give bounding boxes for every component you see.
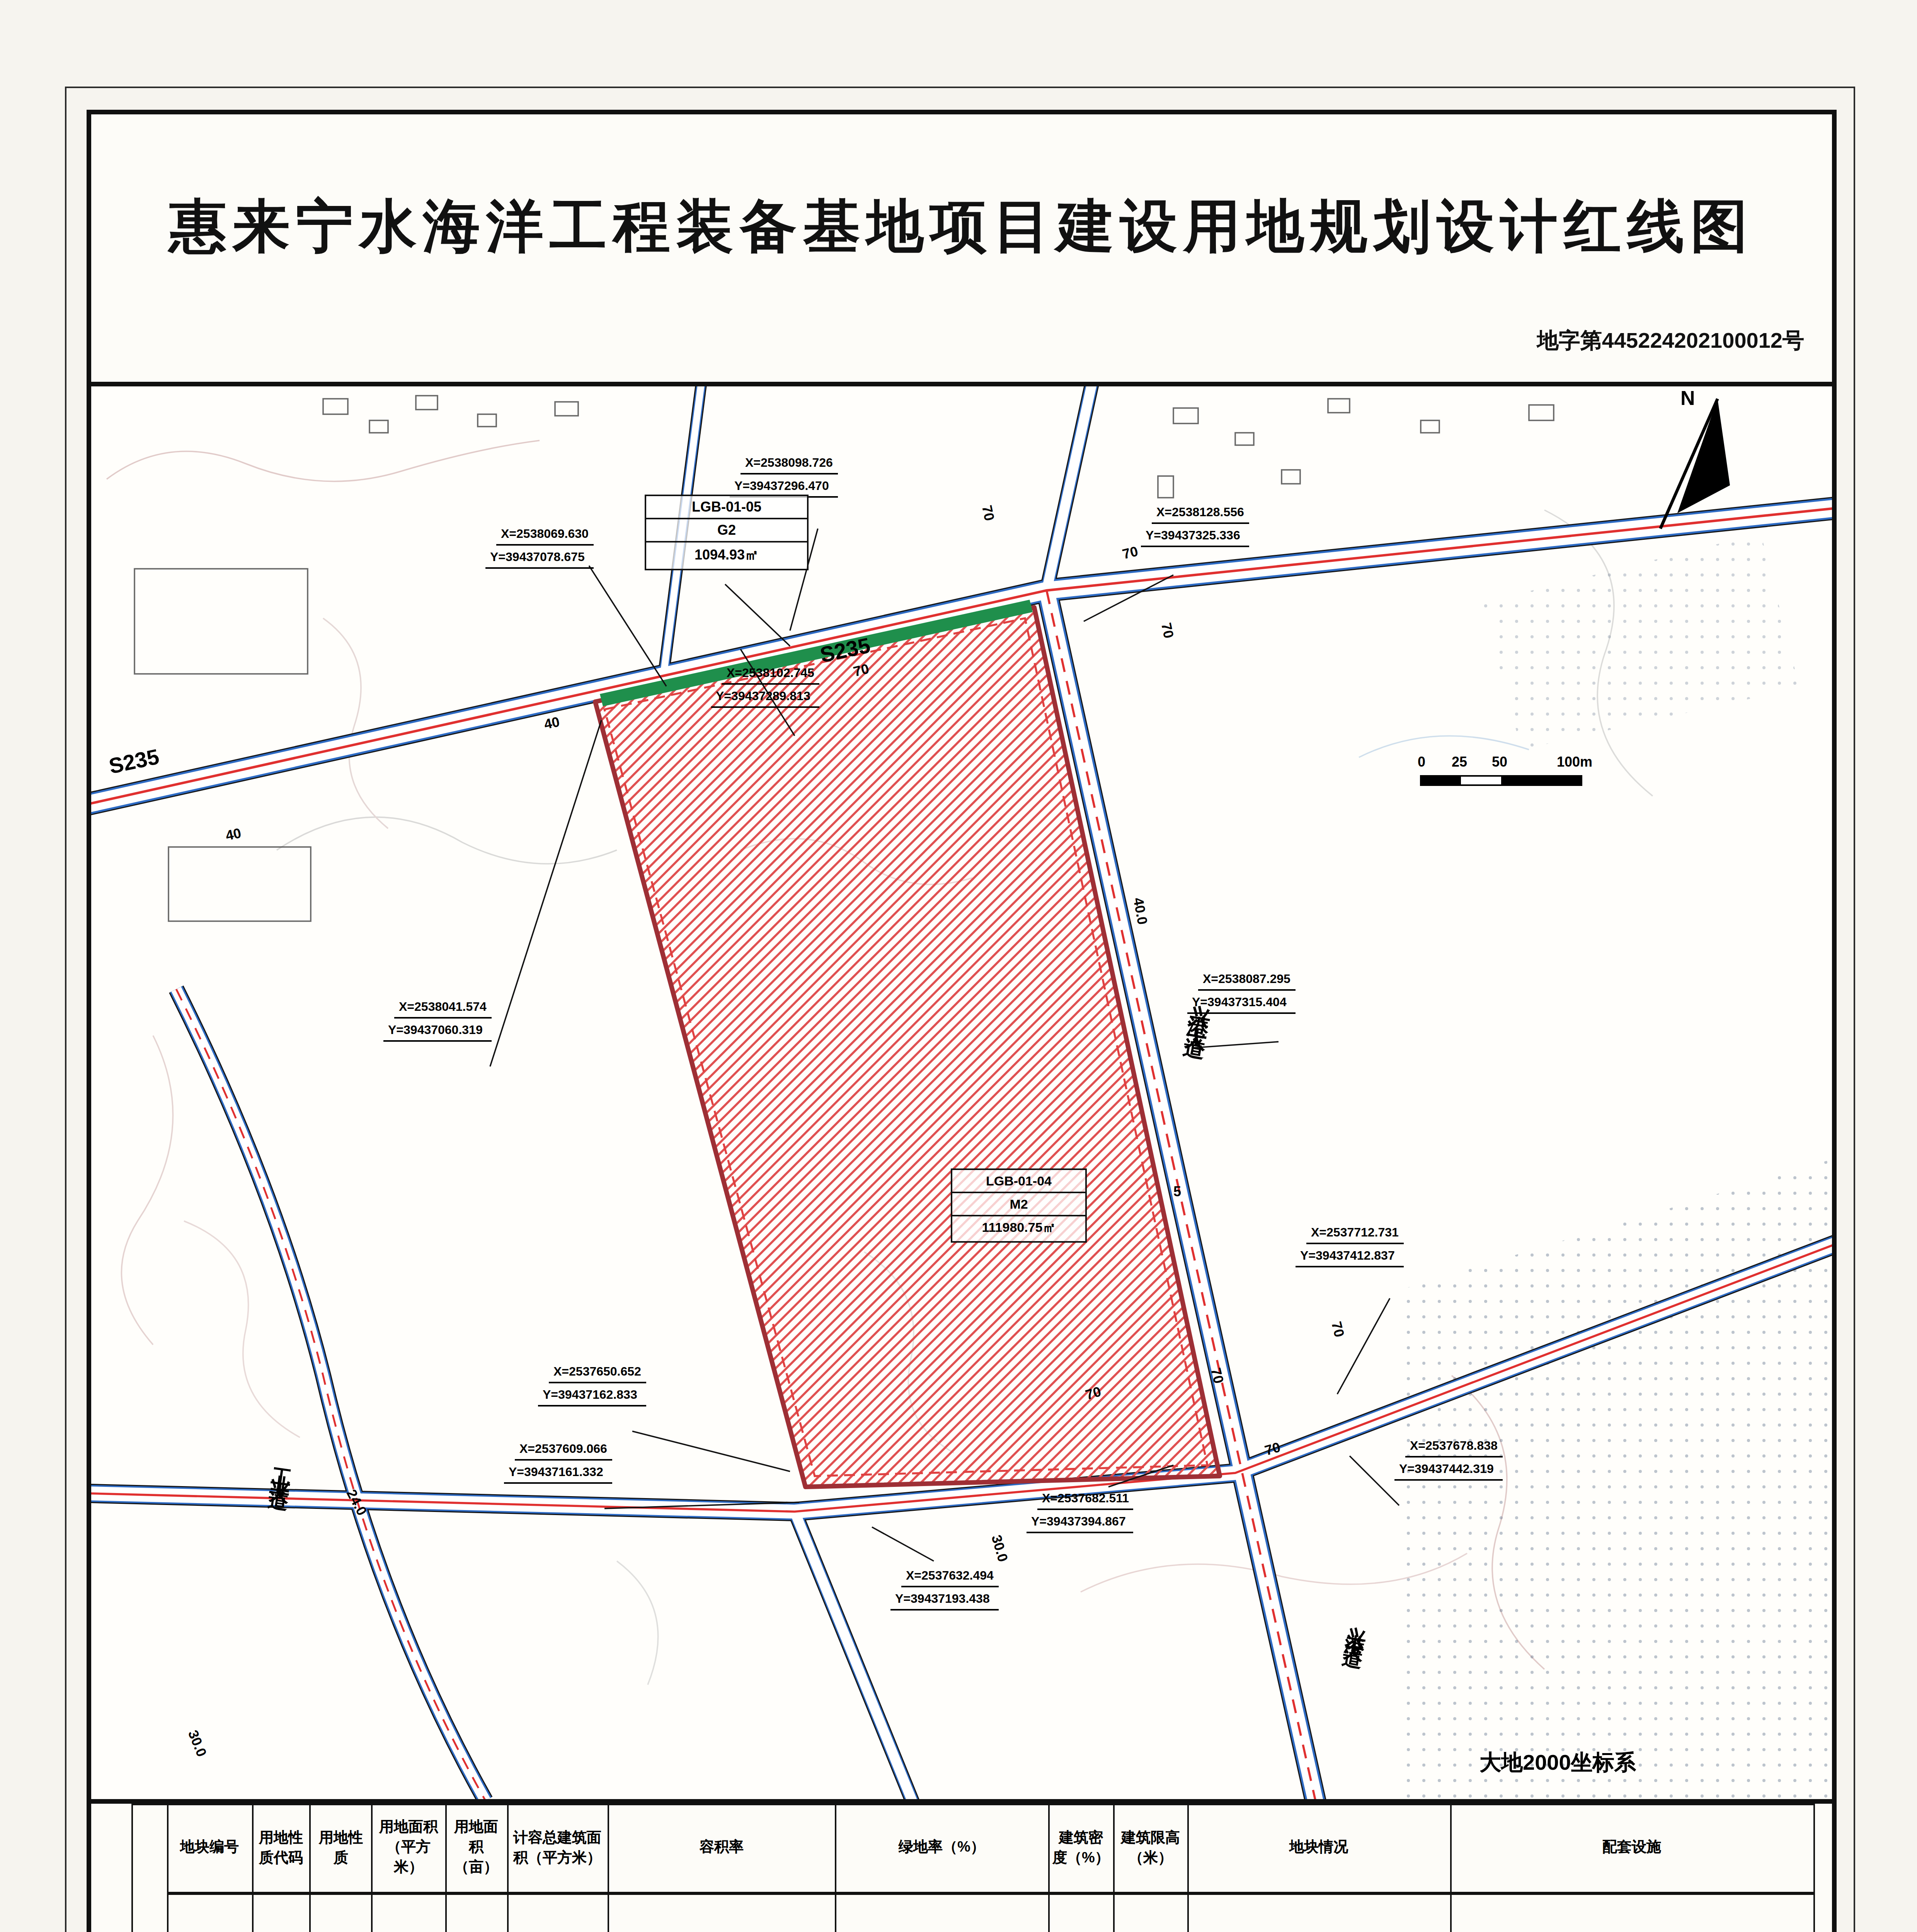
svg-text:50: 50 xyxy=(1492,754,1507,770)
coordinate-callout: X=2537632.494Y=39437193.438 xyxy=(901,1570,998,1611)
col-header: 用地面积（平方米） xyxy=(372,1804,445,1893)
col-header: 配套设施 xyxy=(1450,1804,1813,1893)
table-side-label: 控制指标 xyxy=(132,1804,167,1932)
coordinate-callout: X=2537712.731Y=39437412.837 xyxy=(1306,1227,1403,1267)
svg-text:0: 0 xyxy=(1418,754,1425,770)
north-arrow: N xyxy=(1660,387,1730,529)
col-header: 用地面积（亩） xyxy=(445,1804,507,1893)
col-header: 地块编号 xyxy=(167,1804,252,1893)
plan-sheet: 惠来宁水海洋工程装备基地项目建设用地规划设计红线图 地字第44522420210… xyxy=(0,0,1917,1932)
road-label-xinggang-lower: 兴港大道 xyxy=(1341,1607,1374,1643)
coordinate-callout: X=2537609.066Y=39437161.332 xyxy=(515,1444,612,1484)
cell: 拟出让用地 xyxy=(1187,1893,1450,1932)
cell: M 2 xyxy=(252,1893,310,1932)
cell: LGB-01-04 xyxy=(167,1893,252,1932)
coordinate-callout: X=2538069.630Y=39437078.675 xyxy=(496,529,593,569)
col-header: 容积率 xyxy=(608,1804,836,1893)
cell: 按相关标准、规范配置，具体配置设施见用地规划条件。 xyxy=(1450,1893,1813,1932)
coordinate-callout: X=2538102.745Y=39437289.813 xyxy=(722,668,819,708)
coordinate-callout: X=2538041.574Y=39437060.319 xyxy=(394,1002,491,1042)
outer-border: 惠来宁水海洋工程装备基地项目建设用地规划设计红线图 地字第44522420210… xyxy=(65,87,1855,1932)
orchard-dots-2 xyxy=(1483,533,1800,750)
coordinate-callout: X=2537650.652Y=39437162.833 xyxy=(549,1366,646,1406)
col-header: 用地性质代码 xyxy=(252,1804,310,1893)
svg-text:N: N xyxy=(1680,387,1695,409)
col-header: 建筑密度（%） xyxy=(1048,1804,1114,1893)
cell: ≥78386.52，≤223961.50 xyxy=(507,1893,608,1932)
parcel-box-lgb0104: LGB-01-04M2111980.75㎡ xyxy=(951,1168,1087,1243)
dim-label: 5 xyxy=(1173,1184,1181,1199)
table-row: LGB-01-04 M 2 二类工业用地 111980.75 167.97 ≥7… xyxy=(132,1893,1813,1932)
title-band: 惠来宁水海洋工程装备基地项目建设用地规划设计红线图 地字第44522420210… xyxy=(91,114,1832,382)
coordinate-callout: X=2538098.726Y=39437296.470 xyxy=(741,457,838,498)
indicator-table: 控制指标 地块编号 用地性质代码 用地性质 用地面积（平方米） 用地面积（亩） … xyxy=(131,1804,1814,1932)
dim-label: 40 xyxy=(224,825,243,844)
col-header: 用地性质 xyxy=(310,1804,372,1893)
planning-map: N 0 25 50 100m X=2538069.630Y=39437078.6… xyxy=(91,382,1832,1804)
cell: 111980.75 xyxy=(372,1893,445,1932)
col-header: 地块情况 xyxy=(1187,1804,1450,1893)
col-header: 绿地率（%） xyxy=(836,1804,1048,1893)
cell: ≤50 xyxy=(1048,1893,1114,1932)
content-frame: 惠来宁水海洋工程装备基地项目建设用地规划设计红线图 地字第44522420210… xyxy=(87,110,1837,1932)
cell: ≥0.7，≤2.0 xyxy=(608,1893,836,1932)
coordinate-system-note: 大地2000坐标系 xyxy=(1479,1750,1636,1777)
parcel-box-lgb0105: LGB-01-05G21094.93㎡ xyxy=(645,495,809,570)
svg-text:100m: 100m xyxy=(1557,754,1592,770)
dim-label: 70 xyxy=(979,504,997,522)
indicator-table-section: 控制指标 地块编号 用地性质代码 用地性质 用地面积（平方米） 用地面积（亩） … xyxy=(91,1804,1832,1932)
coordinate-callout: X=2538128.556Y=39437325.336 xyxy=(1152,507,1249,547)
cell: ≤45 xyxy=(1114,1893,1187,1932)
col-header: 计容总建筑面积（平方米） xyxy=(507,1804,608,1893)
scale-bar: 0 25 50 100m xyxy=(1418,754,1592,785)
svg-text:25: 25 xyxy=(1452,754,1467,770)
col-header: 建筑限高（米） xyxy=(1114,1804,1187,1893)
page-title: 惠来宁水海洋工程装备基地项目建设用地规划设计红线图 xyxy=(91,189,1832,266)
dim-label: 70 xyxy=(1158,621,1176,640)
cell: 167.97 xyxy=(445,1893,507,1932)
doc-number: 地字第445224202100012号 xyxy=(1537,328,1804,355)
cell: 二类工业用地 xyxy=(310,1893,372,1932)
coordinate-callout: X=2537678.838Y=39437442.319 xyxy=(1405,1440,1502,1481)
parcel-red-line xyxy=(595,607,1220,1487)
coordinate-callout: X=2537682.511Y=39437394.867 xyxy=(1037,1493,1134,1533)
cell: ≤20 xyxy=(836,1893,1048,1932)
road-label-gongye: 工业大道 xyxy=(266,1450,298,1484)
dim-label: 40 xyxy=(543,714,561,732)
